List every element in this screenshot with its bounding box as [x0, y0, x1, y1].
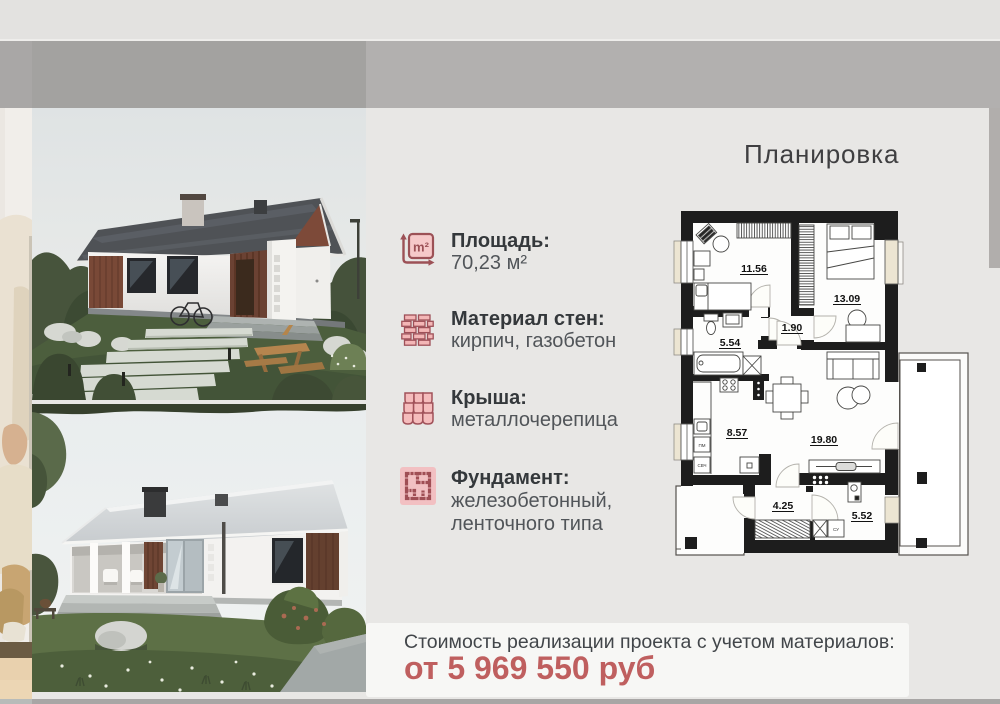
- svg-text:1.90: 1.90: [782, 322, 803, 334]
- svg-text:СВЧ: СВЧ: [697, 463, 706, 468]
- svg-text:5.54: 5.54: [720, 337, 741, 349]
- svg-text:m²: m²: [413, 240, 430, 255]
- svg-text:ПМ: ПМ: [699, 443, 706, 448]
- svg-text:13.09: 13.09: [834, 293, 860, 305]
- svg-text:5.52: 5.52: [852, 510, 873, 522]
- svg-text:4.25: 4.25: [773, 500, 794, 512]
- svg-text:8.57: 8.57: [727, 427, 748, 439]
- svg-text:11.56: 11.56: [741, 263, 767, 275]
- svg-text:СУ: СУ: [833, 527, 839, 532]
- svg-text:19.80: 19.80: [811, 434, 837, 446]
